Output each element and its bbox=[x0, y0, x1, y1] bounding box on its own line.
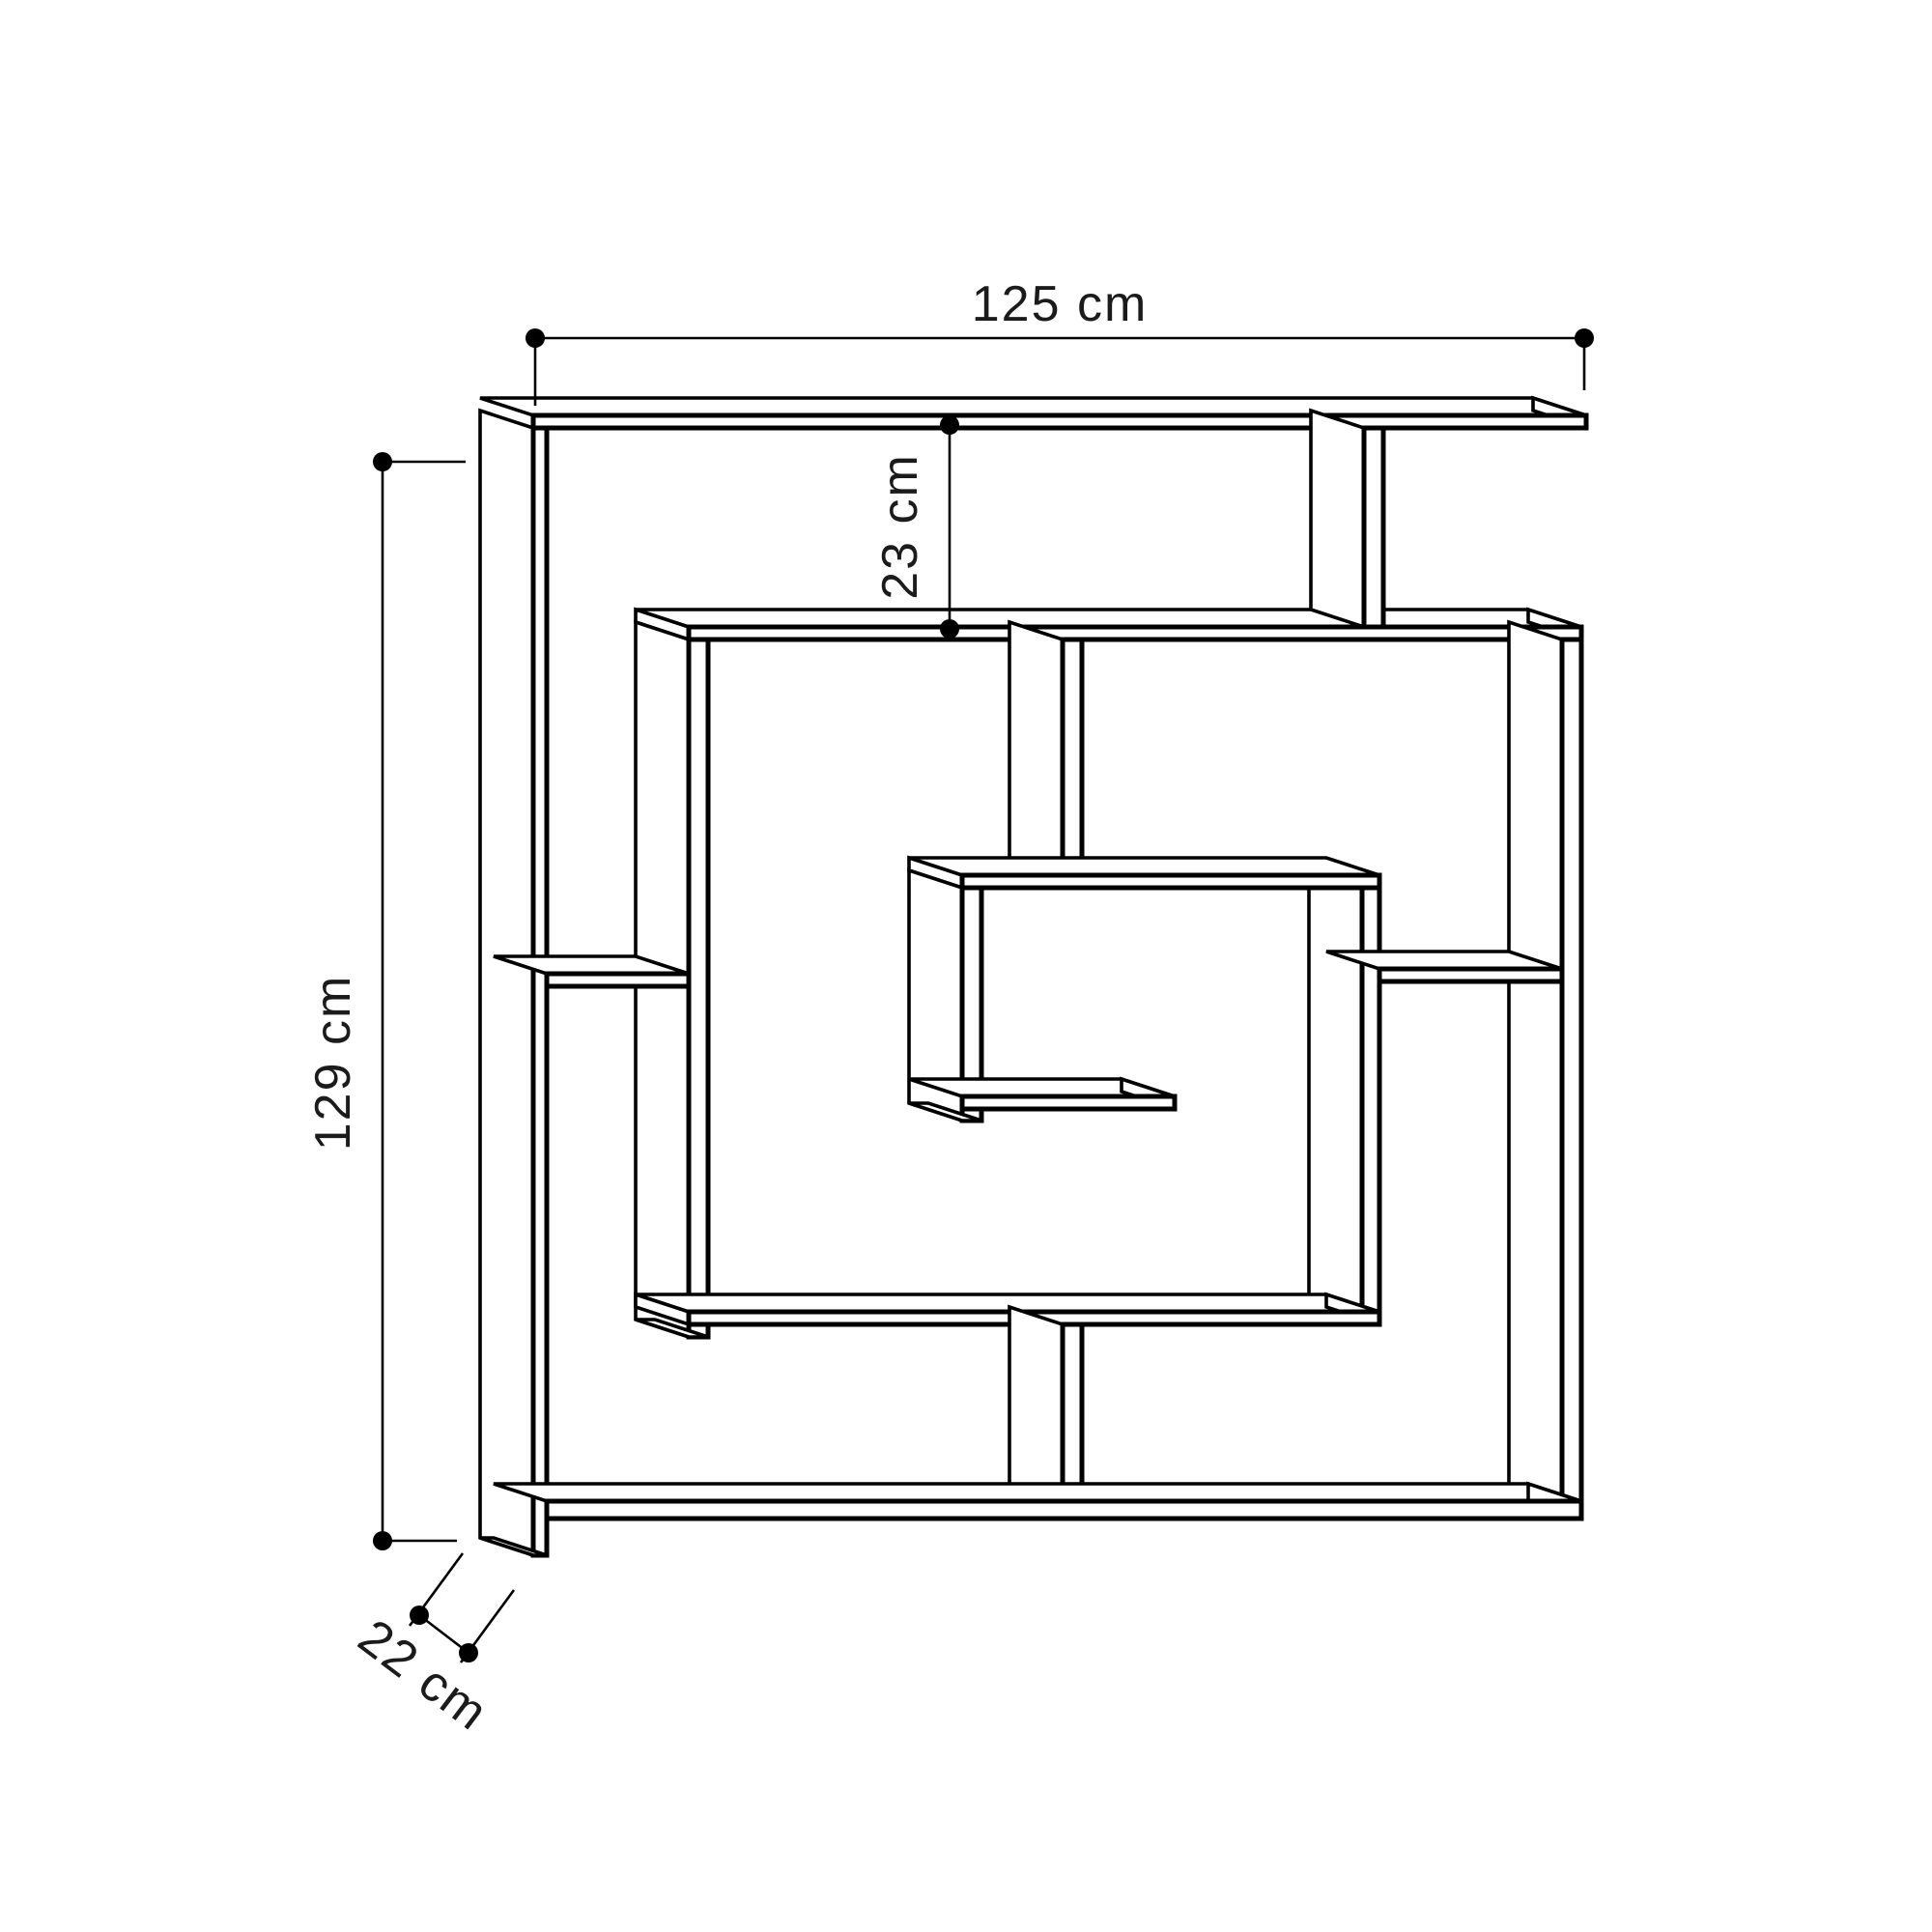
gap-dimension-label: 23 cm bbox=[872, 453, 928, 600]
top-divider bbox=[1311, 411, 1383, 627]
frame-bottom-shelf bbox=[636, 1294, 1379, 1324]
depth-dimension-label: 22 cm bbox=[348, 1609, 498, 1743]
height-dimension: 129 cm bbox=[305, 452, 466, 1550]
bookshelf-dimension-diagram: 125 cm 23 cm 129 cm 22 cm bbox=[0, 0, 1932, 1932]
center-divider bbox=[1009, 622, 1082, 875]
width-dimension-label: 125 cm bbox=[972, 276, 1149, 332]
inner-spiral-top-shelf bbox=[909, 858, 1379, 888]
right-panel bbox=[1509, 622, 1581, 1501]
depth-dimension: 22 cm bbox=[348, 1553, 514, 1742]
top-shelf bbox=[480, 398, 1586, 428]
width-dimension: 125 cm bbox=[526, 276, 1594, 406]
second-shelf bbox=[636, 610, 1581, 639]
bottom-board bbox=[494, 1484, 1581, 1519]
height-dimension-label: 129 cm bbox=[305, 975, 361, 1151]
frame-right-vertical bbox=[1309, 870, 1379, 1312]
gap-dimension: 23 cm bbox=[872, 415, 959, 639]
left-panel bbox=[480, 411, 547, 1555]
diagram-canvas: 125 cm 23 cm 129 cm 22 cm bbox=[0, 0, 1932, 1932]
bottom-divider bbox=[1009, 1307, 1082, 1501]
